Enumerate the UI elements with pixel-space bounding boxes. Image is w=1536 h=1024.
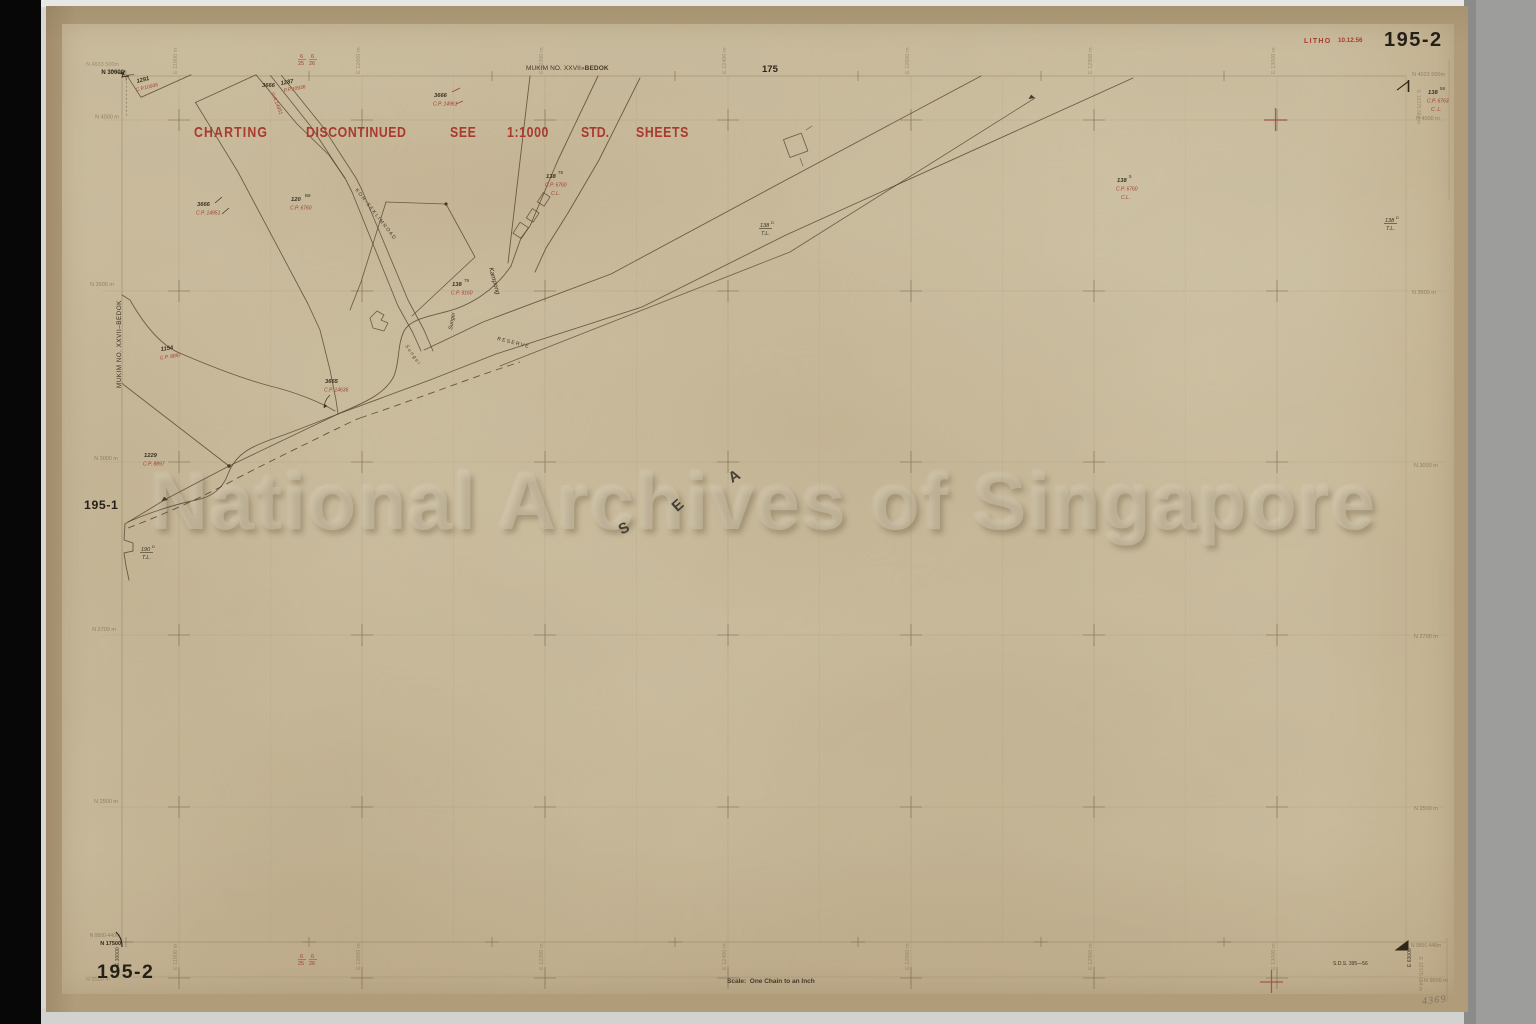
- svg-text:T.L.: T.L.: [1386, 226, 1395, 232]
- svg-text:C.P. 6763: C.P. 6763: [1427, 99, 1449, 105]
- svg-text:N 9500 m: N 9500 m: [1424, 978, 1448, 984]
- svg-text:MUKIM NO. XXVII–BEDOK: MUKIM NO. XXVII–BEDOK: [116, 300, 123, 388]
- svg-text:N 2500 m: N 2500 m: [1414, 806, 1438, 812]
- svg-text:C.L.: C.L.: [1121, 195, 1130, 201]
- svg-text:26: 26: [309, 961, 315, 967]
- svg-text:N 17500: N 17500: [100, 941, 121, 947]
- svg-text:N 4000 m: N 4000 m: [95, 115, 119, 121]
- svg-text:E 12600 m: E 12600 m: [905, 943, 911, 970]
- svg-text:B8: B8: [305, 193, 311, 198]
- svg-text:E 12800 m: E 12800 m: [1088, 943, 1094, 970]
- svg-text:6: 6: [300, 954, 303, 960]
- svg-text:1229: 1229: [144, 453, 158, 459]
- svg-text:N 3500 m: N 3500 m: [1412, 290, 1436, 296]
- svg-text:138: 138: [760, 223, 770, 229]
- svg-text:N 4000 m: N 4000 m: [1416, 116, 1440, 122]
- svg-text:E 13000 m: E 13000 m: [1271, 47, 1277, 74]
- svg-text:78: 78: [558, 170, 564, 175]
- svg-text:N 30000: N 30000: [101, 70, 124, 76]
- svg-text:C.P. 9160: C.P. 9160: [451, 291, 473, 297]
- svg-text:C.P. 14961: C.P. 14961: [433, 102, 458, 108]
- svg-text:N 2700 m: N 2700 m: [92, 627, 116, 633]
- svg-text:138: 138: [1117, 178, 1127, 184]
- svg-text:E 11800 m: E 11800 m: [173, 47, 179, 74]
- svg-text:C. L.: C. L.: [1431, 107, 1442, 113]
- svg-text:E 63000: E 63000: [1407, 948, 1413, 967]
- svg-text:6: 6: [311, 54, 314, 60]
- svg-text:D: D: [1396, 215, 1399, 220]
- svg-text:E 11800 m: E 11800 m: [173, 943, 179, 970]
- svg-text:120: 120: [291, 197, 301, 203]
- svg-text:26: 26: [309, 61, 315, 67]
- svg-text:C.P. 6760: C.P. 6760: [290, 206, 312, 212]
- svg-text:E 12375 694 m: E 12375 694 m: [1417, 957, 1423, 991]
- svg-text:E 12000 m: E 12000 m: [356, 47, 362, 74]
- svg-text:6: 6: [300, 54, 303, 60]
- svg-text:C.P. 14951: C.P. 14951: [196, 211, 221, 217]
- svg-text:N 3000 m: N 3000 m: [94, 456, 118, 462]
- svg-text:T.L.: T.L.: [761, 231, 770, 237]
- svg-text:E 12800 m: E 12800 m: [1088, 47, 1094, 74]
- svg-text:D: D: [771, 220, 774, 225]
- svg-text:138: 138: [1428, 90, 1438, 96]
- svg-text:E 12000 m: E 12000 m: [356, 943, 362, 970]
- svg-text:3666: 3666: [197, 202, 211, 208]
- svg-text:T.L.: T.L.: [142, 555, 151, 561]
- svg-text:C.P. 14636: C.P. 14636: [324, 388, 349, 394]
- svg-text:3666: 3666: [434, 93, 448, 99]
- svg-text:C.P. 8897: C.P. 8897: [143, 462, 165, 468]
- svg-text:138: 138: [546, 174, 556, 180]
- svg-text:138: 138: [1385, 218, 1395, 224]
- svg-text:C.P. 6760: C.P. 6760: [1116, 187, 1138, 193]
- svg-text:N 3500 m: N 3500 m: [90, 282, 114, 288]
- svg-text:E 12600 m: E 12600 m: [905, 47, 911, 74]
- svg-text:E 12400 m: E 12400 m: [722, 943, 728, 970]
- svg-text:E 13000 m: E 13000 m: [1271, 943, 1277, 970]
- svg-text:D: D: [152, 544, 155, 549]
- svg-text:25: 25: [298, 61, 304, 67]
- svg-text:N 3000 m: N 3000 m: [1414, 463, 1438, 469]
- svg-text:N 9500 448m: N 9500 448m: [1411, 943, 1441, 949]
- svg-text:3666: 3666: [262, 83, 276, 89]
- svg-text:25: 25: [298, 961, 304, 967]
- svg-text:58: 58: [1440, 86, 1446, 91]
- svg-text:190: 190: [141, 547, 151, 553]
- svg-text:138: 138: [452, 282, 462, 288]
- svg-text:6: 6: [311, 954, 314, 960]
- svg-text:N 9500-440m: N 9500-440m: [90, 933, 120, 939]
- svg-text:S.D.S. 395—56: S.D.S. 395—56: [1333, 961, 1368, 967]
- svg-text:79: 79: [464, 278, 470, 283]
- svg-text:N 2500 m: N 2500 m: [94, 799, 118, 805]
- svg-text:3665: 3665: [325, 379, 339, 385]
- svg-text:E 12200 m: E 12200 m: [539, 943, 545, 970]
- svg-text:C.L.: C.L.: [551, 191, 560, 197]
- svg-text:E 12400 m: E 12400 m: [722, 47, 728, 74]
- svg-text:N 2700 m: N 2700 m: [1414, 634, 1438, 640]
- svg-text:E 12375 684m: E 12375 684m: [1416, 51, 1422, 84]
- svg-text:C.P. 6760: C.P. 6760: [545, 183, 567, 189]
- svg-text:N 4833 500m: N 4833 500m: [86, 62, 119, 68]
